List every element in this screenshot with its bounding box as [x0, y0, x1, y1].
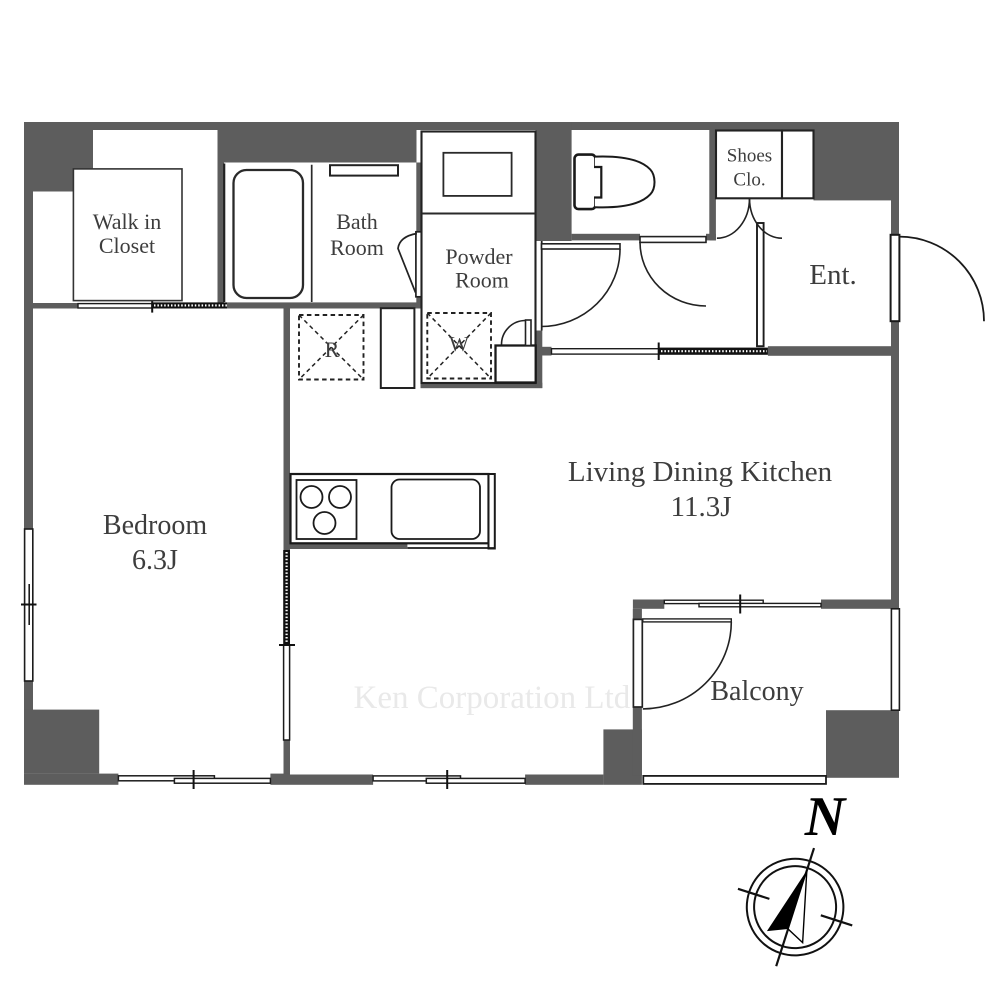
svg-text:Living Dining Kitchen: Living Dining Kitchen — [568, 456, 833, 488]
svg-text:Shoes: Shoes — [727, 146, 772, 167]
svg-text:Walk in: Walk in — [93, 209, 162, 234]
svg-text:Bedroom: Bedroom — [103, 510, 207, 541]
svg-text:Powder: Powder — [445, 244, 513, 269]
svg-text:W: W — [449, 332, 469, 356]
svg-text:Bath: Bath — [336, 209, 378, 234]
svg-text:Room: Room — [330, 235, 384, 260]
svg-text:Ent.: Ent. — [809, 259, 857, 291]
svg-text:Ken Corporation Ltd.: Ken Corporation Ltd. — [353, 680, 638, 716]
svg-text:Clo.: Clo. — [733, 170, 765, 191]
svg-text:Balcony: Balcony — [710, 676, 803, 707]
svg-text:Closet: Closet — [99, 233, 155, 258]
svg-text:11.3J: 11.3J — [671, 491, 732, 523]
svg-text:Room: Room — [455, 268, 509, 293]
svg-text:N: N — [804, 786, 848, 848]
svg-text:R: R — [325, 337, 340, 362]
svg-text:6.3J: 6.3J — [132, 545, 178, 576]
